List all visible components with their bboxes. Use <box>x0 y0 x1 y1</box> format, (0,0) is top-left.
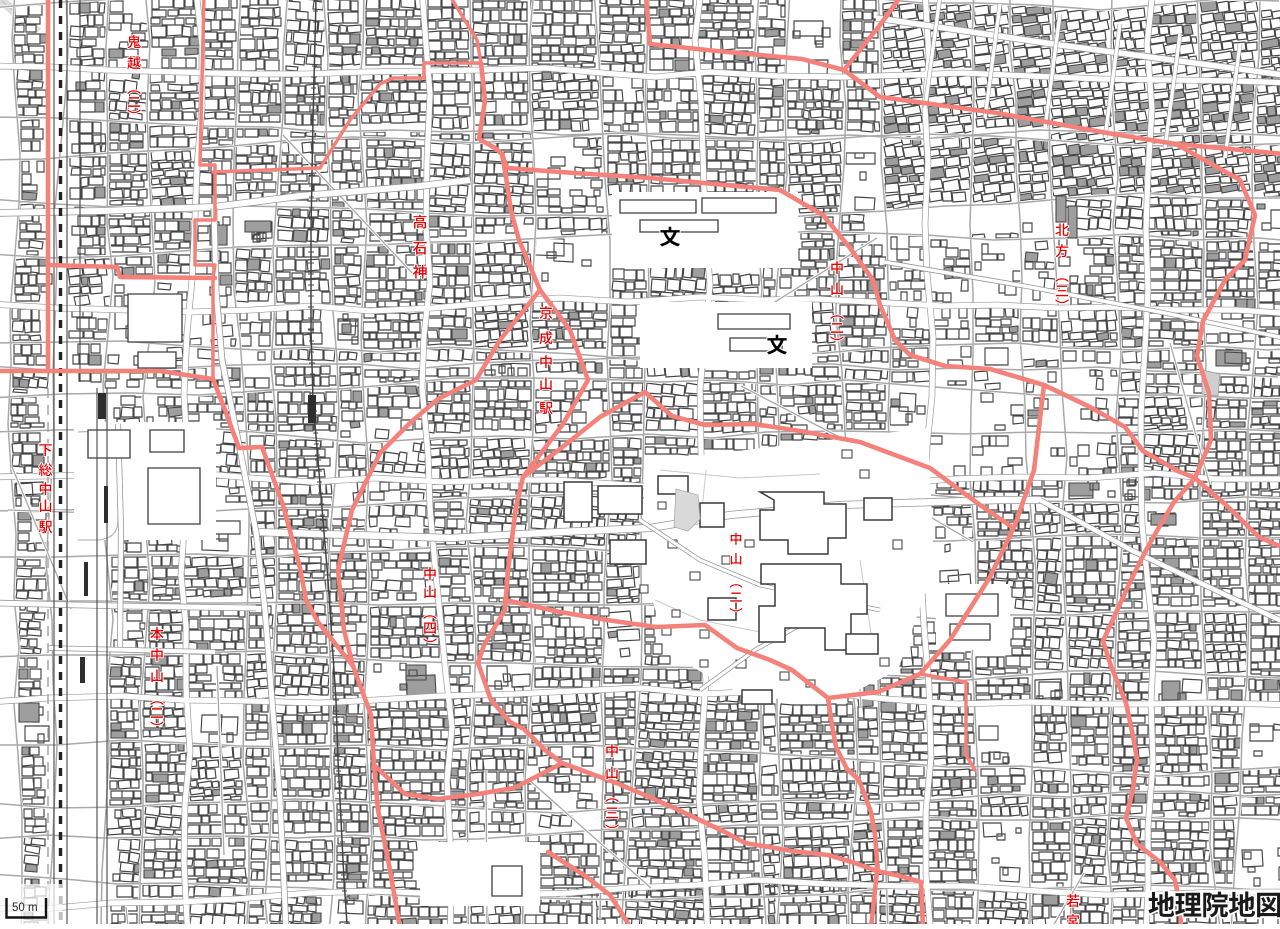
svg-text:50 m: 50 m <box>12 902 38 914</box>
